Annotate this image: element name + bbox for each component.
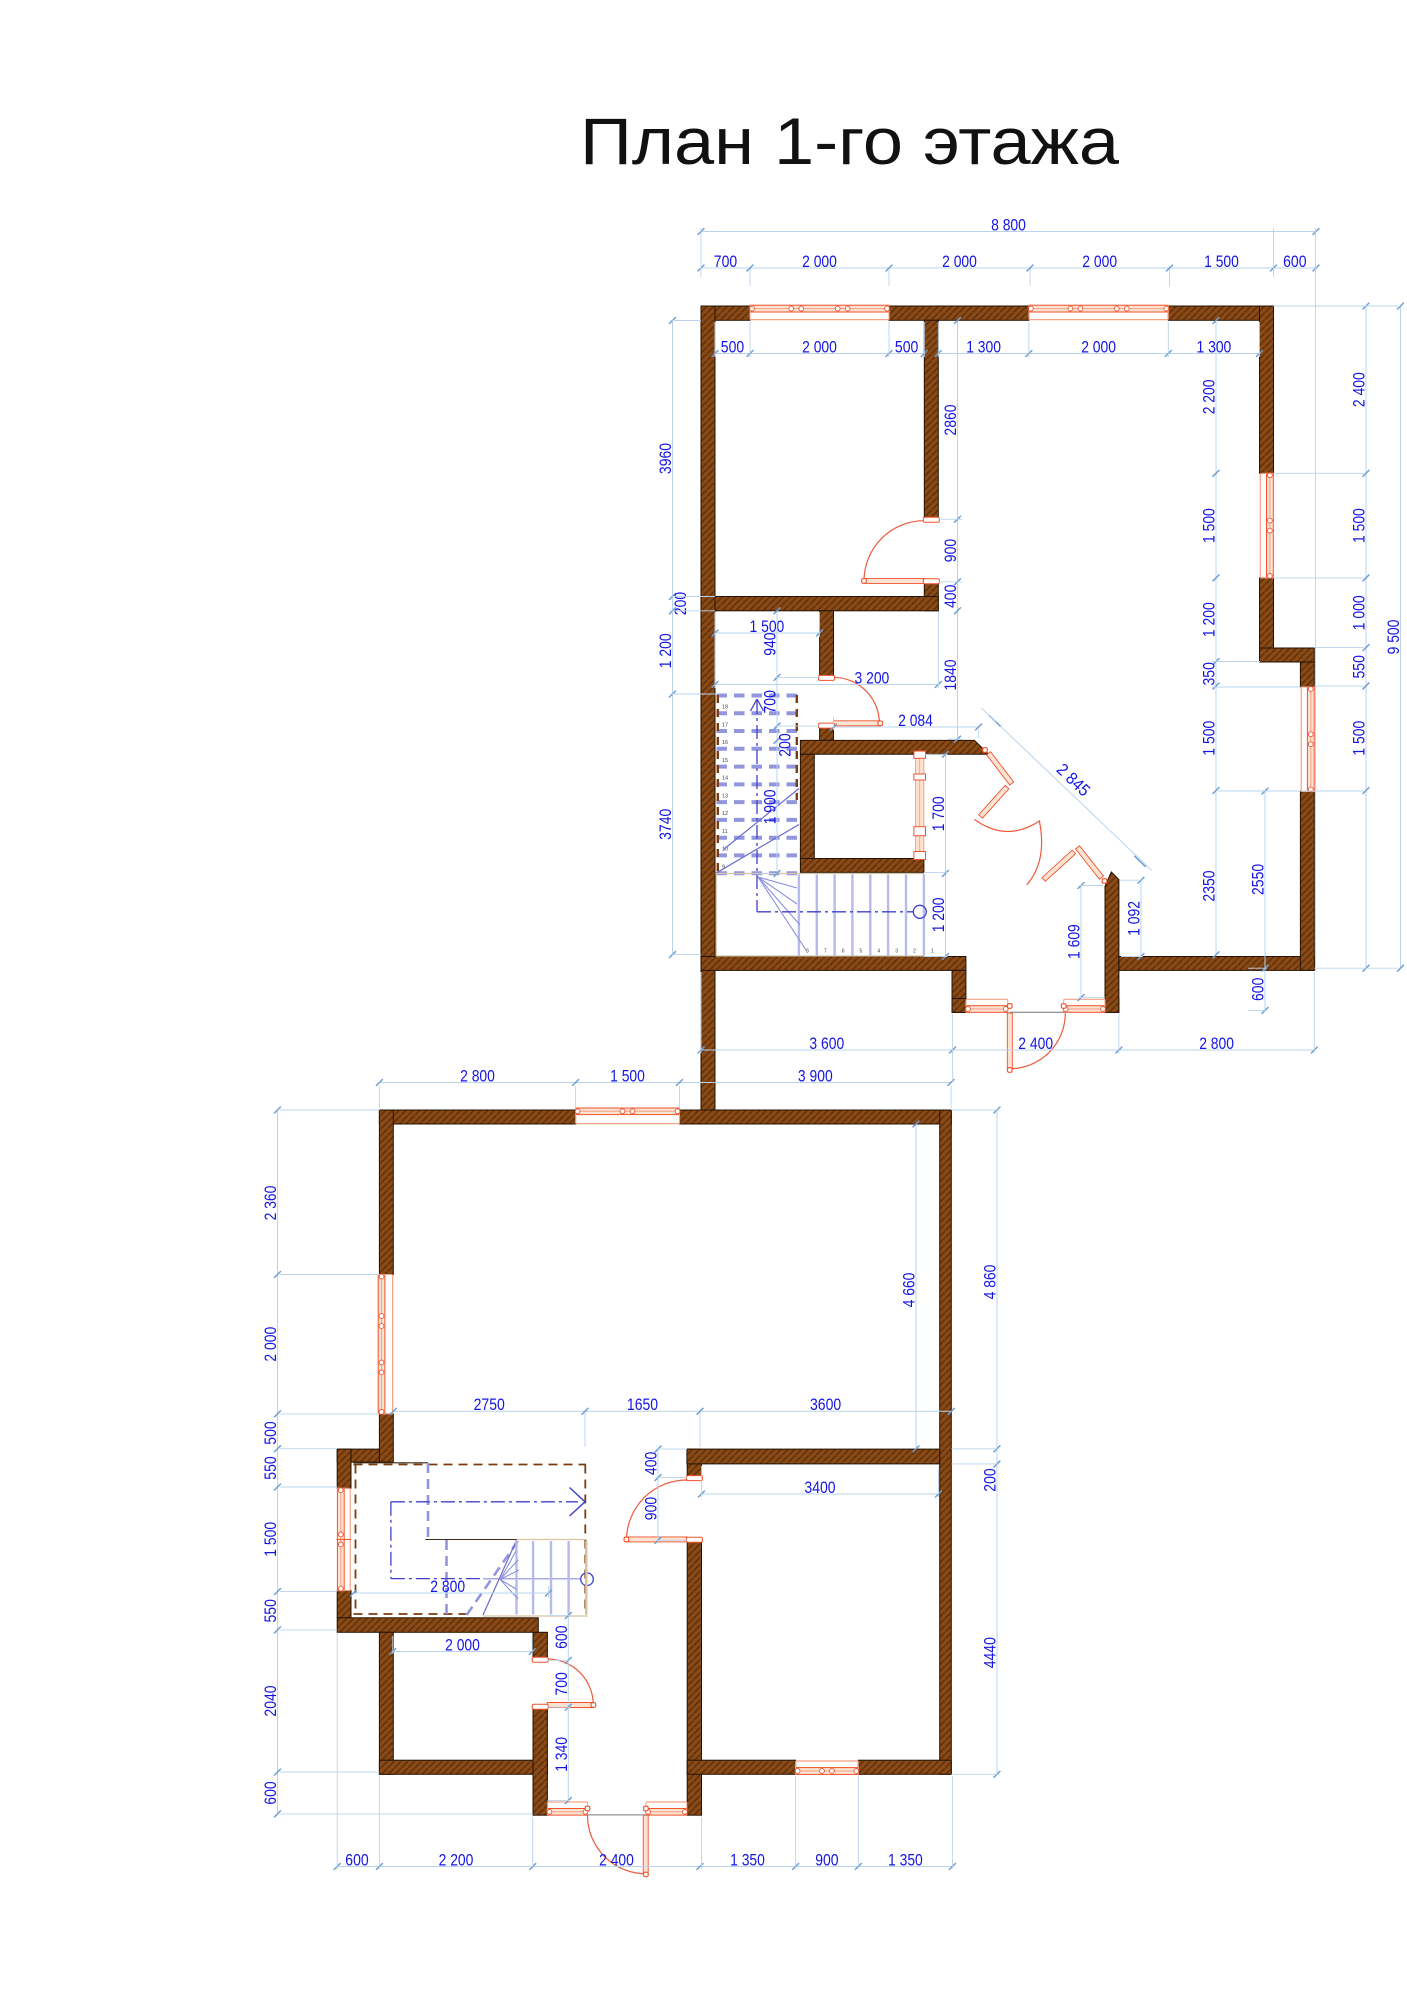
svg-text:2 000: 2 000 — [1081, 337, 1116, 356]
svg-text:1 700: 1 700 — [929, 796, 948, 831]
svg-text:3 200: 3 200 — [855, 668, 890, 687]
svg-text:1 000: 1 000 — [1350, 595, 1369, 630]
svg-text:2 800: 2 800 — [430, 1577, 465, 1596]
svg-text:8: 8 — [806, 949, 809, 955]
svg-text:600: 600 — [552, 1626, 571, 1649]
svg-text:200: 200 — [776, 733, 795, 756]
svg-text:550: 550 — [1350, 655, 1369, 678]
svg-text:1 500: 1 500 — [1200, 721, 1219, 756]
svg-text:2 000: 2 000 — [445, 1635, 480, 1654]
svg-text:1: 1 — [931, 949, 934, 955]
svg-text:700: 700 — [552, 1672, 571, 1695]
svg-text:600: 600 — [1249, 978, 1268, 1001]
svg-text:200: 200 — [671, 592, 690, 615]
svg-text:2: 2 — [913, 949, 916, 955]
svg-text:2 000: 2 000 — [802, 337, 837, 356]
svg-text:11: 11 — [722, 829, 728, 835]
svg-text:350: 350 — [1200, 662, 1219, 685]
svg-text:9 500: 9 500 — [1384, 620, 1403, 655]
svg-text:500: 500 — [895, 337, 918, 356]
svg-text:600: 600 — [1283, 252, 1306, 271]
svg-text:600: 600 — [261, 1781, 280, 1804]
svg-text:550: 550 — [261, 1456, 280, 1479]
svg-text:4440: 4440 — [981, 1637, 1000, 1668]
svg-text:1 609: 1 609 — [1065, 924, 1084, 959]
svg-text:500: 500 — [721, 337, 744, 356]
svg-text:940: 940 — [761, 632, 780, 655]
svg-text:17: 17 — [722, 722, 728, 728]
svg-text:18: 18 — [722, 705, 728, 711]
svg-text:15: 15 — [722, 758, 728, 764]
svg-text:2 400: 2 400 — [1018, 1034, 1053, 1053]
svg-text:200: 200 — [981, 1468, 1000, 1491]
svg-text:3 600: 3 600 — [809, 1034, 844, 1053]
svg-text:2 000: 2 000 — [942, 252, 977, 271]
svg-text:600: 600 — [345, 1850, 368, 1869]
svg-text:2 800: 2 800 — [1199, 1034, 1234, 1053]
svg-text:900: 900 — [941, 539, 960, 562]
svg-text:План 1-го этажа: План 1-го этажа — [580, 104, 1119, 178]
svg-text:2 000: 2 000 — [802, 252, 837, 271]
svg-text:2 360: 2 360 — [261, 1186, 280, 1221]
svg-text:1 200: 1 200 — [656, 633, 675, 668]
svg-text:2750: 2750 — [474, 1395, 505, 1414]
svg-text:1 500: 1 500 — [1200, 508, 1219, 543]
svg-text:4 860: 4 860 — [981, 1265, 1000, 1300]
svg-text:400: 400 — [941, 585, 960, 608]
svg-text:1 200: 1 200 — [1200, 602, 1219, 637]
svg-text:3 900: 3 900 — [798, 1066, 833, 1085]
svg-text:1 500: 1 500 — [1350, 508, 1369, 543]
svg-text:14: 14 — [722, 776, 728, 782]
svg-text:1650: 1650 — [627, 1395, 658, 1414]
svg-text:8 800: 8 800 — [991, 215, 1026, 234]
svg-text:3600: 3600 — [810, 1395, 841, 1414]
svg-text:1 340: 1 340 — [552, 1737, 571, 1772]
svg-text:2 200: 2 200 — [1200, 379, 1219, 414]
svg-text:2860: 2860 — [941, 404, 960, 435]
svg-text:1 350: 1 350 — [730, 1850, 765, 1869]
svg-text:4 660: 4 660 — [900, 1273, 919, 1308]
svg-text:1 300: 1 300 — [1197, 337, 1232, 356]
svg-text:7: 7 — [824, 949, 827, 955]
svg-text:2 084: 2 084 — [898, 711, 933, 730]
svg-text:1 300: 1 300 — [966, 337, 1001, 356]
svg-text:550: 550 — [261, 1599, 280, 1622]
svg-text:2 400: 2 400 — [599, 1850, 634, 1869]
svg-text:6: 6 — [842, 949, 845, 955]
svg-text:4: 4 — [877, 949, 880, 955]
svg-text:1840: 1840 — [941, 659, 960, 690]
svg-text:1 500: 1 500 — [261, 1522, 280, 1557]
svg-text:1 092: 1 092 — [1125, 901, 1144, 936]
svg-text:2550: 2550 — [1249, 864, 1268, 895]
svg-text:1 200: 1 200 — [929, 898, 948, 933]
svg-text:16: 16 — [722, 740, 728, 746]
svg-text:500: 500 — [261, 1421, 280, 1444]
svg-text:3740: 3740 — [656, 809, 675, 840]
svg-text:5: 5 — [860, 949, 863, 955]
svg-text:2 800: 2 800 — [460, 1066, 495, 1085]
svg-text:2 400: 2 400 — [1350, 372, 1369, 407]
svg-text:13: 13 — [722, 793, 728, 799]
svg-text:2 000: 2 000 — [261, 1327, 280, 1362]
svg-text:1 500: 1 500 — [1350, 721, 1369, 756]
svg-text:3960: 3960 — [656, 443, 675, 474]
svg-text:2350: 2350 — [1200, 870, 1219, 901]
svg-text:12: 12 — [722, 811, 728, 817]
svg-text:2 200: 2 200 — [439, 1850, 474, 1869]
svg-text:2040: 2040 — [261, 1685, 280, 1716]
svg-text:3400: 3400 — [804, 1478, 835, 1497]
svg-text:400: 400 — [642, 1452, 661, 1475]
svg-text:700: 700 — [714, 252, 737, 271]
svg-text:2 000: 2 000 — [1082, 252, 1117, 271]
svg-text:3: 3 — [895, 949, 898, 955]
svg-text:1 500: 1 500 — [1204, 252, 1239, 271]
svg-text:1 900: 1 900 — [761, 790, 780, 825]
svg-text:900: 900 — [815, 1850, 838, 1869]
svg-text:900: 900 — [642, 1497, 661, 1520]
svg-text:1 500: 1 500 — [610, 1066, 645, 1085]
svg-text:700: 700 — [761, 690, 780, 713]
svg-text:1 350: 1 350 — [888, 1850, 923, 1869]
